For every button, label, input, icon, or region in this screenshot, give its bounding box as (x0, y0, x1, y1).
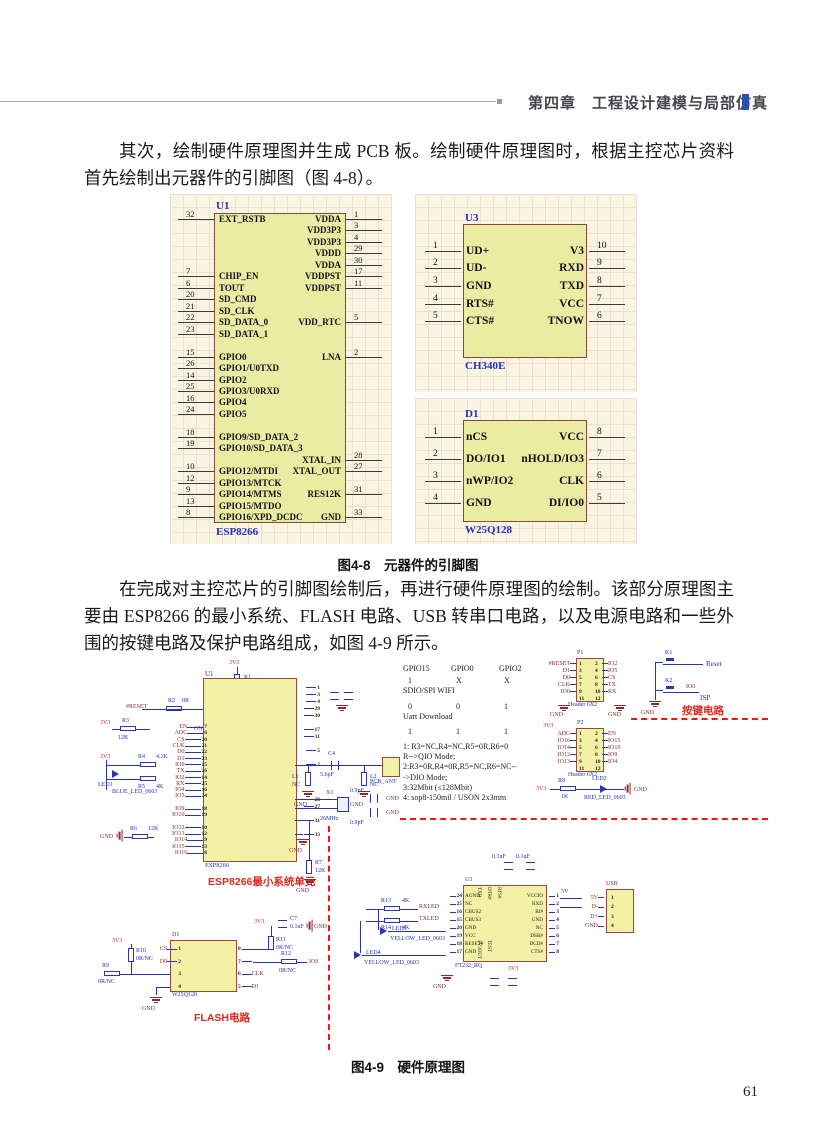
pin-row: 25 (448, 900, 463, 908)
pin-row: 14 GPIO2 (178, 374, 382, 385)
value: 0R (182, 698, 189, 705)
pin-row (295, 719, 321, 726)
value: 4K (402, 898, 409, 905)
pin-row: 2 DO/IO1 nHOLD/IO3 7 (425, 448, 625, 470)
pin-number: 1 (578, 730, 586, 737)
led3-name: YELLOW_LED_0603 (390, 936, 445, 943)
usb-signals: 5VD-D+GND (582, 893, 604, 931)
wire (677, 664, 703, 665)
pin-row: 11 (295, 733, 321, 740)
pin-row: 6 TOUT VDDPST 11 (178, 282, 382, 293)
pin-row: 8 GPIO16/XPD_DCDC GND 33 (178, 512, 382, 523)
pin-row (295, 754, 321, 761)
pin-row: 1 UD+ V3 10 (425, 242, 625, 260)
p1-left-signals: #RESETD1D0CLKIO0 (542, 660, 576, 702)
power-net-label: 3V3 (254, 919, 264, 926)
capacitor-c4 (331, 761, 339, 770)
signal-row: GND (582, 922, 604, 932)
paragraph-2: 在完成对主控芯片的引脚图绘制后，再进行硬件原理图的绘制。该部分原理图主要由 ES… (84, 576, 734, 657)
pin-number: 1 (610, 893, 618, 903)
figure-4-9-schematic: 3V3 R1 2K #RESET R2 0R C1 1uF GND 3V3 R3… (98, 648, 778, 1052)
wire (295, 799, 340, 800)
wire (106, 779, 140, 780)
inductor-l2 (361, 772, 367, 786)
esp-right-pin-rows: 134293017115228273133 (295, 684, 321, 838)
wire (400, 909, 418, 910)
wire (560, 907, 582, 908)
chip-designator: U1 (205, 670, 214, 678)
inductor-l1 (305, 772, 311, 786)
pin-row: 15 GPIO0 LNA 2 (178, 351, 382, 362)
pin-row: 17 (295, 726, 321, 733)
dashed-separator (328, 826, 330, 1050)
pin-row: 21 SD_CLK (178, 305, 382, 316)
gnd-label: GND (608, 712, 621, 719)
chip-name: W25Q128 (465, 524, 512, 536)
designator: LED1 (98, 782, 113, 789)
pin-label: RI# (503, 908, 543, 916)
pin-label: RXD (503, 900, 543, 908)
capacitor-c5 (370, 794, 378, 803)
pin-label: GND (465, 924, 503, 932)
paragraph-1: 其次，绘制硬件原理图并生成 PCB 板。绘制硬件原理图时，根据主控芯片资料首先绘… (84, 138, 734, 192)
pin-label: 3V3OUT (476, 940, 481, 959)
wire (366, 909, 384, 910)
signal-row (542, 765, 576, 772)
wire (560, 898, 582, 899)
wire (655, 662, 663, 663)
pin-number: 2 (610, 903, 618, 913)
figure-4-8: U1 32 EXT_RSTB VDDA 1 (0, 192, 816, 552)
signal-row: CS (602, 674, 636, 681)
pin-row: 5D1 (237, 981, 297, 994)
pin-row: D02 (136, 956, 182, 969)
pin-number: 7 (578, 681, 586, 688)
p2-right-signals: ENIO15IO10IO9IO4 (602, 730, 636, 772)
boot-value: 1 (408, 676, 456, 685)
page-number: 61 (743, 1084, 758, 1101)
boot-row-2: 001 (408, 702, 552, 711)
designator: L1 (292, 774, 299, 781)
signal-row (542, 695, 576, 702)
pin-row: 30 (295, 712, 321, 719)
designator: R13 (381, 898, 391, 905)
value: 12K (315, 868, 325, 875)
signal-row: ADC (542, 730, 576, 737)
gnd-symbol (304, 878, 316, 885)
pin-label: TEST (486, 940, 491, 959)
chapter-title: 第四章 工程设计建模与局部仿真 (528, 92, 768, 113)
pin-row: 29 (295, 705, 321, 712)
p2-left-pin-numbers: 1357911 (578, 730, 586, 772)
signal-row (602, 695, 636, 702)
gnd-symbol (441, 974, 453, 981)
pin-label: NC (465, 900, 503, 908)
page-header: 第四章 工程设计建模与局部仿真 (0, 92, 816, 114)
figure-4-9-caption: 图4-9 硬件原理图 (0, 1056, 816, 1076)
pin-number: 3 (578, 667, 586, 674)
resistor-r3 (120, 726, 136, 731)
capacitor (344, 692, 353, 700)
gnd-label: GND (289, 848, 302, 855)
pin-label: CTS# (503, 948, 543, 956)
pin-label: CBUS2 (465, 908, 503, 916)
pcb-antenna-block (382, 757, 400, 777)
signal-row (602, 765, 636, 772)
signal-row: IO4 (602, 758, 636, 765)
value: 1K (561, 794, 568, 801)
pushbutton-k2 (663, 686, 677, 693)
pin-label: VCCIO (503, 892, 543, 900)
pin-row: VDD3P3 3 (178, 224, 382, 235)
gnd-symbol (649, 700, 661, 707)
wire (360, 921, 361, 953)
led1-symbol (112, 770, 119, 778)
signal-row: #RESET (542, 660, 576, 667)
signal-row: IO13 (542, 758, 576, 765)
chip-designator: U1 (216, 200, 229, 212)
pin-row (295, 810, 321, 817)
resistor-r14 (384, 918, 400, 923)
net-label-io0: IO0 (686, 684, 695, 691)
figure-4-8-caption: 图4-8 元器件的引脚图 (0, 554, 816, 574)
gnd-symbol (150, 996, 162, 1003)
value: 0.9pF (350, 820, 364, 827)
designator: K2 (665, 678, 672, 685)
pin-row: 5 (295, 747, 321, 754)
power-net-label: 3V3 (536, 786, 546, 793)
pin-row: XTAL_IN 28 (178, 454, 382, 465)
pin-number: 9 (578, 758, 586, 765)
pin-row: CS1 (136, 943, 182, 956)
pin-number: 4 (594, 667, 602, 674)
pin-diagram-panel-esp8266: U1 32 EXT_RSTB VDDA 1 (170, 194, 392, 544)
signal-row: 5V (582, 893, 604, 903)
chip-designator: U3 (465, 877, 472, 884)
pin-row: 2 (545, 900, 560, 908)
pin-number: 6 (594, 674, 602, 681)
wire (308, 765, 309, 772)
note-line: 4: sop8-150mil / USON 2x3mm (403, 792, 517, 802)
pin-row: 19 GPIO10/SD_DATA_3 (178, 443, 382, 454)
signal-row: IO14 (542, 744, 576, 751)
wire (362, 955, 446, 956)
wire (295, 808, 340, 809)
pin-row: 8 (545, 948, 560, 956)
capacitor-c7 (278, 920, 287, 928)
value: 0.9pF (350, 788, 364, 795)
pin-row: 2 UD- RXD 9 (425, 260, 625, 278)
value: 0.1uF (290, 924, 304, 931)
pin-row: VDDA 30 (178, 259, 382, 270)
led2-symbol (600, 785, 607, 793)
power-net-label: 3V3 (112, 938, 122, 945)
wire (124, 837, 132, 838)
region-label-flash: FLASH电路 (194, 1012, 250, 1024)
value: 0.1uF (492, 854, 506, 861)
pin-label: DTR# (486, 887, 491, 900)
pin-row: 20 (448, 924, 463, 932)
signal-row: TX (602, 681, 636, 688)
gnd-symbol (558, 704, 570, 711)
designator: R3 (122, 718, 129, 725)
wire (297, 962, 307, 963)
capacitor (508, 978, 517, 986)
pin-label: DSR# (503, 932, 543, 940)
signal-row: RX (602, 688, 636, 695)
chip-name: ESP8266 (205, 862, 229, 869)
chip-name: FT232_RQ (455, 963, 482, 970)
led3-symbol (380, 927, 387, 935)
led2-name: RED_LED_0603 (584, 795, 626, 802)
resistor-r8 (560, 786, 576, 791)
gnd-symbol (302, 790, 314, 797)
boot-value: X (456, 676, 504, 685)
gnd-label: GND (433, 984, 446, 991)
ft-right-pin-numbers: 12345678 (545, 892, 560, 956)
crystal-x1 (337, 797, 349, 812)
pin-number: 12 (594, 765, 602, 772)
value: NC (292, 782, 300, 789)
led4-name: YELLOW_LED_0603 (364, 960, 419, 967)
pin-row: 3 GND TXD 8 (425, 277, 625, 295)
net-label-io0: IO0 (309, 959, 318, 966)
designator: R4 (138, 754, 145, 761)
pin-number: 11 (578, 765, 586, 772)
pin-row: 1 (545, 892, 560, 900)
wire (400, 921, 418, 922)
note-line: 1: R3=NC,R4=NC,R5=0R,R6=0 (403, 741, 517, 751)
pin-row: 20 SD_CMD (178, 293, 382, 304)
pin-number: 4 (594, 737, 602, 744)
pin-row: 1 (295, 684, 321, 691)
chip-designator: D1 (172, 932, 179, 939)
signal-row: D+ (582, 912, 604, 922)
signal-row: CLK (542, 681, 576, 688)
pcb-antenna-label: PCB_ANT (370, 779, 397, 786)
dashed-separator (631, 718, 768, 720)
pin-row (295, 740, 321, 747)
pin-row: 16 (448, 908, 463, 916)
pin-row: 19 (448, 932, 463, 940)
pin-row (295, 824, 321, 831)
pin-row: 7 (545, 940, 560, 948)
capacitor-c6 (370, 808, 378, 817)
wire (295, 834, 303, 835)
signal-row: D0 (542, 674, 576, 681)
designator: C4 (328, 751, 335, 758)
signal-row: IO16 (542, 737, 576, 744)
usb-pin-numbers: 1234 (610, 893, 618, 931)
book-page: 第四章 工程设计建模与局部仿真 其次，绘制硬件原理图并生成 PCB 板。绘制硬件… (0, 0, 816, 1145)
signal-row: IO0 (542, 688, 576, 695)
wire (366, 921, 384, 922)
wire (237, 667, 238, 674)
gnd-symbol (624, 783, 631, 795)
gnd-label: GND (634, 787, 647, 794)
pin-row: 6 (545, 932, 560, 940)
capacitor (504, 862, 513, 870)
power-net-label: 3V3 (543, 723, 553, 730)
pin-row: 4 RTS# VCC 7 (425, 295, 625, 313)
esp8266-pin-diagram: U1 32 EXT_RSTB VDDA 1 (178, 200, 382, 538)
wire (655, 692, 656, 700)
designator: K1 (665, 650, 672, 657)
gnd-label: GND (386, 796, 399, 803)
wire (309, 820, 310, 860)
esp-left-pin-rows: EN7ADC6CS20CLK21D022D123IO015TX26IO214RX… (148, 724, 208, 856)
wire (364, 765, 365, 772)
wire (677, 692, 699, 693)
ch340e-pin-diagram: U3 1 UD+ V3 10 2 UD- (425, 212, 625, 372)
chip-name: ESP8266 (216, 526, 258, 538)
wire (378, 909, 379, 930)
pin-number: 1 (578, 660, 586, 667)
pin-number: 5 (578, 744, 586, 751)
dashed-separator (400, 818, 768, 820)
pin-number: 2 (594, 660, 602, 667)
pin-row: VDDD 29 (178, 247, 382, 258)
gnd-label: GND (350, 802, 363, 809)
boot-value: 1 (504, 702, 552, 711)
pin-row: 32 EXT_RSTB VDDA 1 (178, 213, 382, 224)
value: 0R/NC (98, 979, 115, 986)
value: 26MHz (320, 816, 338, 823)
note-line: 2:R3=0R,R4=0R,R5=NC,R6=NC-- (403, 762, 517, 772)
resistor-r13 (384, 906, 400, 911)
pin-row: 5 (545, 924, 560, 932)
wire (271, 926, 272, 936)
pin-row: 4 (136, 981, 182, 994)
pin-number: 3 (578, 737, 586, 744)
wire (655, 690, 663, 691)
pin-rows: 32 EXT_RSTB VDDA 1 VDD3P3 3 (178, 213, 382, 523)
pin-label: GND (503, 916, 543, 924)
p1-left-pin-numbers: 1357911 (578, 660, 586, 702)
chip-name: W25Q128 (172, 992, 197, 999)
gnd-label: GND (314, 924, 327, 931)
pin-row: 17 (448, 948, 463, 956)
designator: R8 (558, 778, 565, 785)
p2-left-signals: ADCIO16IO14IO12IO13 (542, 730, 576, 772)
pin-row: 12 GPIO13/MTCK (178, 477, 382, 488)
p1-right-signals: IO2IO5CSTXRX (602, 660, 636, 702)
pin-number: 10 (594, 688, 602, 695)
gnd-symbol (336, 704, 348, 711)
boot-table-header: GPIO15GPIO0GPIO2 (403, 664, 547, 673)
wire (655, 662, 656, 692)
power-net-label: 3V3 (100, 720, 110, 727)
chip-designator: U3 (465, 212, 478, 224)
pin-row: 3 (545, 908, 560, 916)
capacitor (490, 978, 499, 986)
signal-row: IO12 (542, 751, 576, 758)
pin-label: CBUS3 (465, 916, 503, 924)
designator: R5 (138, 784, 145, 791)
gnd-label: GND (142, 1006, 155, 1013)
boot-column: GPIO2 (499, 664, 547, 673)
designator: R9 (102, 963, 109, 970)
resistor-r11 (268, 936, 274, 950)
pin-number: 2 (594, 730, 602, 737)
power-net-label: 5V (561, 889, 568, 896)
wire (142, 709, 203, 710)
pin-row: 25 GPIO3/U0RXD (178, 385, 382, 396)
boot-value: 0 (408, 702, 456, 711)
signal-row: IO15 (602, 737, 636, 744)
gnd-label: GND (296, 888, 309, 895)
pin-row: 22 SD_DATA_0 VDD_RTC 5 (178, 316, 382, 327)
pin-number: 8 (594, 681, 602, 688)
pin-row: 3 (295, 691, 321, 698)
pin-diagram-panel-w25q128: D1 1 nCS VCC 8 2 DO/IO1 (415, 398, 637, 544)
pin-number: 11 (578, 695, 586, 702)
pin-row: IO168 (148, 850, 208, 856)
signal-row: D- (582, 903, 604, 913)
pin-number: 10 (594, 758, 602, 765)
header-rule-end-square (497, 99, 502, 104)
signal-row: D1 (542, 667, 576, 674)
header-rule (0, 101, 496, 102)
led4-symbol (354, 951, 361, 959)
reset-label: Reset (706, 660, 722, 668)
ft-right-signals: VCCIORXDRI#GNDNCDSR#DCD#CTS# (503, 892, 543, 956)
pin-row: 26 GPIO1/U0TXD (178, 362, 382, 373)
note-line: R-->QIO Mode; (403, 751, 517, 761)
gnd-symbol (116, 830, 123, 842)
designator: R11 (276, 937, 286, 944)
note-line: 3:32Mbit (≤128Mbit) (403, 782, 517, 792)
pin-number: 12 (594, 695, 602, 702)
power-net-label: 3V3 (229, 660, 239, 667)
capacitor (526, 862, 535, 870)
value: 0R/NC (279, 968, 296, 975)
gnd-label: GND (386, 810, 399, 817)
pin-number: 9 (578, 688, 586, 695)
chip-designator: D1 (465, 408, 478, 420)
pin-row: 5 CTS# TNOW 6 (425, 312, 625, 330)
pin-number: 6 (594, 744, 602, 751)
power-net-label: 3V3 (508, 966, 518, 973)
resistor-r6 (132, 834, 148, 839)
net-label-txled: TXLED (419, 916, 439, 923)
pin-row: 7 CHIP_EN VDDPST 17 (178, 270, 382, 281)
esp8266-chip-block (203, 678, 297, 862)
pin-row (178, 339, 382, 350)
designator: R2 (168, 698, 175, 705)
pin-row: 4 (295, 698, 321, 705)
gnd-symbol (306, 920, 313, 932)
signal-row: EN (602, 730, 636, 737)
pin-label: TXD (476, 887, 481, 900)
resistor-r12 (281, 959, 297, 964)
pin-number: 3 (610, 912, 618, 922)
isp-label: ISP (700, 694, 710, 702)
designator: R12 (281, 951, 291, 958)
gnd-symbol (614, 704, 626, 711)
pin-diagram-panel-ch340e: U3 1 UD+ V3 10 2 UD- (415, 194, 637, 392)
pin-row: VDD3P3 4 (178, 236, 382, 247)
gnd-label: GND (550, 712, 563, 719)
flash-left-pin-rows: CS1D0234 (136, 943, 182, 993)
chapter-number: 第四章 (528, 95, 576, 112)
designator: C7 (290, 916, 297, 923)
gnd-symbol (297, 838, 309, 845)
boot-row-1-label: SDIO/SPI WIFI (403, 686, 455, 695)
region-label-keys: 按键电路 (682, 705, 724, 717)
pin-rows: 1 UD+ V3 10 2 UD- RXD 9 (425, 242, 625, 330)
wire (112, 729, 120, 730)
